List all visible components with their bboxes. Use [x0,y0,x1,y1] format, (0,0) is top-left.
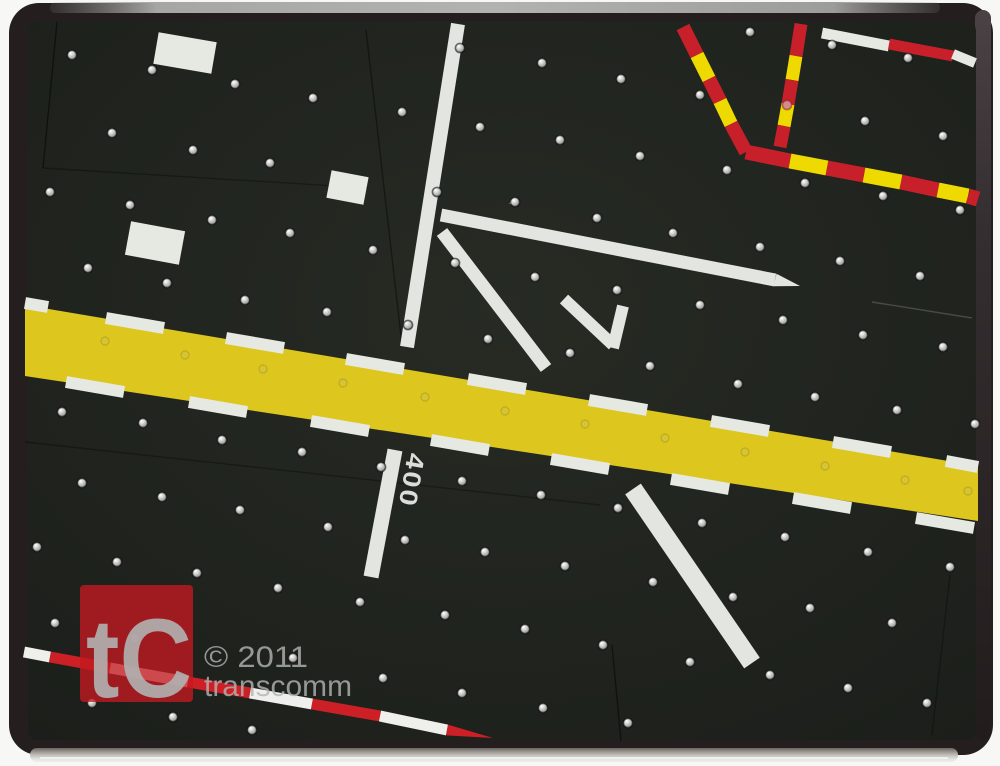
led-stud [835,256,844,265]
led-stud [623,718,632,727]
led-stud [728,592,737,601]
led-stud [273,583,282,592]
led-stud [57,407,66,416]
led-stud [955,205,964,214]
led-stud [695,300,704,309]
led-stud [297,447,306,456]
led-stud [800,178,809,187]
led-stud [613,503,622,512]
led-stud [537,58,546,67]
led-stud [457,476,466,485]
led-stud [722,165,731,174]
led-stud [520,624,529,633]
led-stud [32,542,41,551]
led-stud-under-tape [421,393,429,401]
led-stud [635,151,644,160]
led-stud [432,187,441,196]
led-stud [125,200,134,209]
led-stud [938,131,947,140]
led-stud [565,348,574,357]
led-stud [780,532,789,541]
led-stud-under-tape [339,379,347,387]
led-stud [157,492,166,501]
led-stud [945,562,954,571]
led-stud [555,135,564,144]
led-stud [755,242,764,251]
led-stud [970,419,979,428]
led-stud [480,547,489,556]
led-stud-under-tape [581,420,589,428]
led-stud [207,215,216,224]
watermark-brand: transcomm [204,670,352,703]
led-stud [355,597,364,606]
led-stud [285,228,294,237]
led-stud [457,688,466,697]
watermark-logo-text: tC [86,596,192,721]
led-stud [843,683,852,692]
led-stud [530,272,539,281]
led-stud [510,197,519,206]
led-stud-under-tape [181,351,189,359]
led-stud-under-tape [661,434,669,442]
led-stud [878,191,887,200]
led-stud [765,670,774,679]
led-stud [308,93,317,102]
led-stud-under-tape [821,462,829,470]
led-stud [810,392,819,401]
led-stud-under-tape [964,487,972,495]
led-stud-under-tape [501,407,509,415]
led-stud [733,379,742,388]
led-stud [668,228,677,237]
led-stud [323,522,332,531]
led-stud [112,557,121,566]
led-stud [475,122,484,131]
led-stud [778,315,787,324]
led-stud [162,278,171,287]
led-stud [903,53,912,62]
led-stud [536,490,545,499]
led-stud [938,342,947,351]
led-stud [217,435,226,444]
led-stud [805,603,814,612]
led-stud [450,258,459,267]
led-stud [483,334,492,343]
led-stud [188,145,197,154]
led-stud [403,320,412,329]
led-stud [697,518,706,527]
led-stud [592,213,601,222]
led-stud [77,478,86,487]
led-stud-red [782,100,791,109]
led-stud [863,547,872,556]
frame-top-edge [50,2,940,13]
led-stud [230,79,239,88]
led-stud [616,74,625,83]
led-stud [860,116,869,125]
led-stud [648,577,657,586]
led-stud [67,50,76,59]
led-stud [107,128,116,137]
led-stud [887,618,896,627]
led-stud [50,618,59,627]
led-stud [695,90,704,99]
led-stud [368,245,377,254]
led-stud [922,698,931,707]
led-stud [455,43,464,52]
led-stud [827,40,836,49]
led-stud [560,561,569,570]
board-photo-canvas: 400 tC © 2011 transcomm [0,0,1000,766]
led-stud [858,330,867,339]
led-stud-under-tape [101,337,109,345]
led-stud [598,640,607,649]
led-stud [915,271,924,280]
led-stud [240,295,249,304]
photo-of-model-board: 400 tC © 2011 transcomm [0,0,1000,766]
led-stud-under-tape [741,448,749,456]
led-stud [235,505,244,514]
led-stud [147,65,156,74]
led-stud-under-tape [901,476,909,484]
led-stud [378,673,387,682]
led-stud [400,535,409,544]
led-stud [247,725,256,734]
led-stud [440,610,449,619]
led-stud [745,27,754,36]
frame-right-edge [975,10,991,740]
led-stud [192,568,201,577]
led-stud [45,187,54,196]
led-stud [138,418,147,427]
led-stud [685,657,694,666]
led-stud [538,703,547,712]
frame-bottom-edge [30,748,958,762]
led-stud [612,285,621,294]
led-stud [397,107,406,116]
led-stud [265,158,274,167]
led-stud [322,307,331,316]
led-stud-under-tape [259,365,267,373]
led-stud [376,462,385,471]
led-stud [83,263,92,272]
led-stud [892,405,901,414]
led-stud [645,361,654,370]
